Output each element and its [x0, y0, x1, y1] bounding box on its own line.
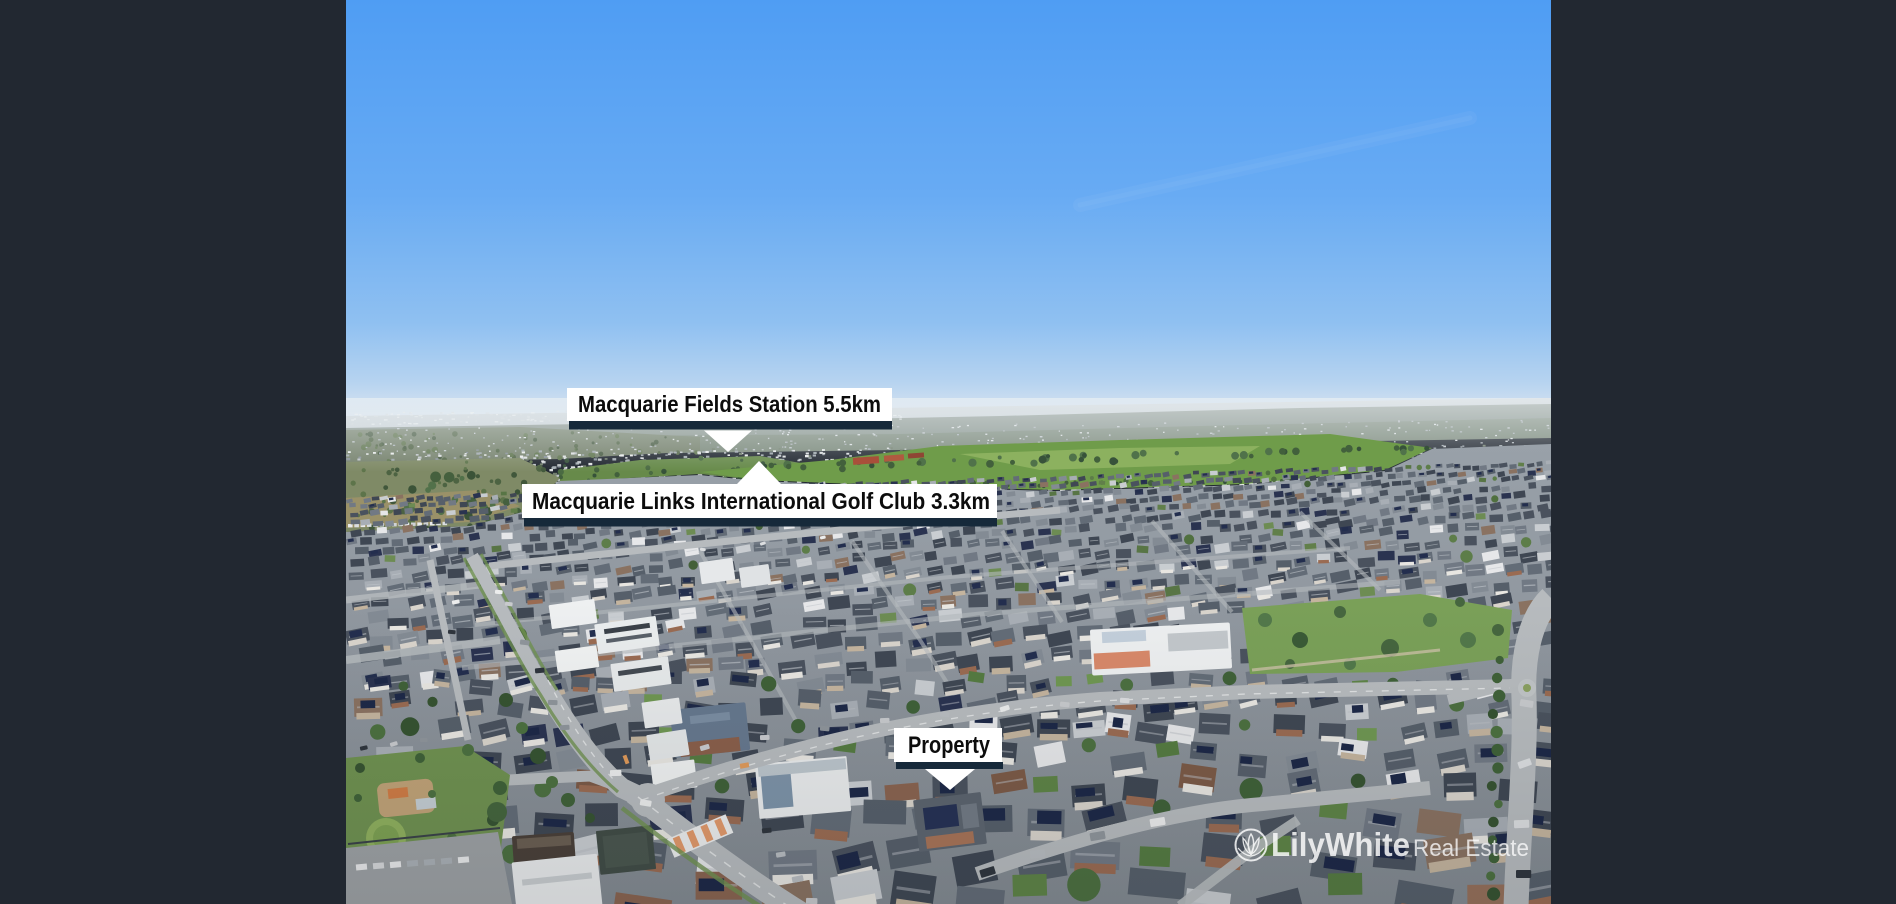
svg-text:Real Estate: Real Estate — [1413, 835, 1529, 862]
svg-text:Macquarie Fields Station 5.5km: Macquarie Fields Station 5.5km — [578, 391, 881, 417]
svg-text:Property: Property — [908, 732, 991, 759]
svg-text:Macquarie Links International: Macquarie Links International Golf Club … — [532, 488, 990, 514]
svg-text:LilyWhite: LilyWhite — [1271, 826, 1410, 863]
